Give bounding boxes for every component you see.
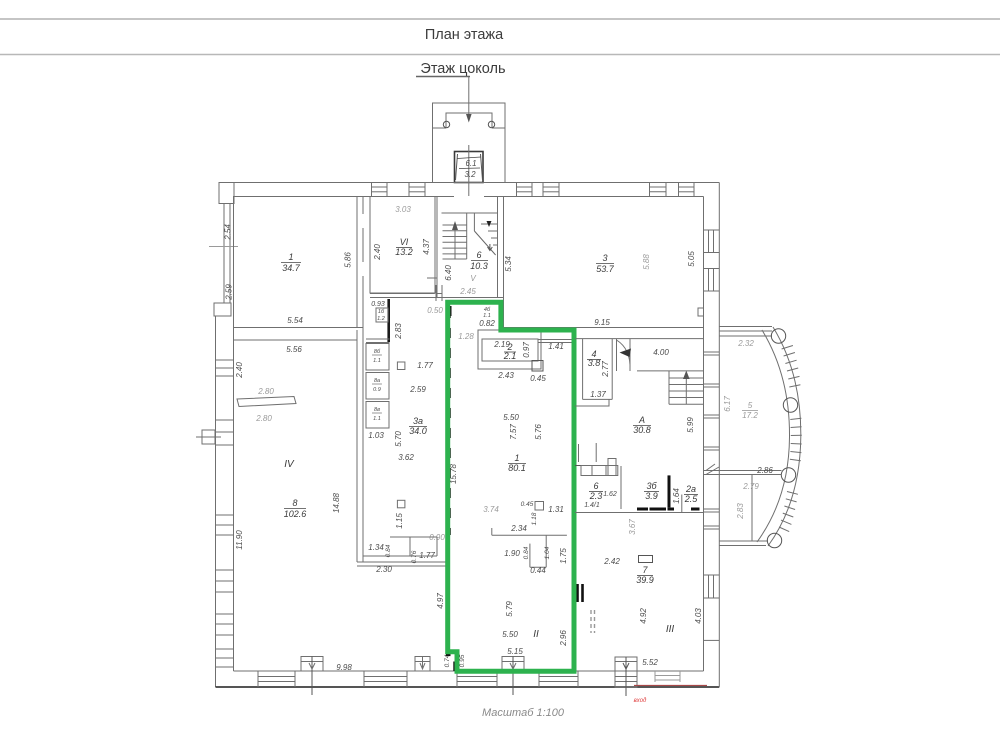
svg-text:102.6: 102.6 <box>284 509 307 519</box>
svg-text:5.88: 5.88 <box>642 254 651 270</box>
svg-text:4.00: 4.00 <box>653 348 669 357</box>
svg-text:2а: 2а <box>685 484 696 494</box>
svg-text:2.80: 2.80 <box>255 414 272 423</box>
svg-text:3.67: 3.67 <box>628 519 637 535</box>
svg-text:6: 6 <box>593 481 598 491</box>
svg-text:2.86: 2.86 <box>756 466 773 475</box>
svg-text:0.44: 0.44 <box>530 566 546 575</box>
svg-text:План этажа: План этажа <box>425 27 504 43</box>
svg-text:1.4/1: 1.4/1 <box>584 502 600 509</box>
svg-text:5.56: 5.56 <box>286 345 302 354</box>
svg-text:5.15: 5.15 <box>507 647 523 656</box>
svg-text:17.2: 17.2 <box>742 411 758 420</box>
svg-text:Этаж цоколь: Этаж цоколь <box>420 61 505 77</box>
svg-text:1.2: 1.2 <box>377 316 385 322</box>
svg-text:5.86: 5.86 <box>344 252 353 268</box>
svg-text:вход: вход <box>634 698 647 704</box>
svg-text:0.45: 0.45 <box>530 374 546 383</box>
svg-text:0.76: 0.76 <box>411 550 418 563</box>
svg-text:2.79: 2.79 <box>742 482 759 491</box>
svg-text:1.03: 1.03 <box>368 431 384 440</box>
svg-text:2.59: 2.59 <box>409 385 426 394</box>
svg-text:4.92: 4.92 <box>639 608 648 624</box>
svg-text:0.97: 0.97 <box>522 342 531 358</box>
svg-text:2.54: 2.54 <box>224 224 233 241</box>
svg-text:1.41: 1.41 <box>548 342 564 351</box>
svg-text:2.43: 2.43 <box>497 371 514 380</box>
svg-text:9.15: 9.15 <box>594 318 610 327</box>
svg-text:5.05: 5.05 <box>687 251 696 267</box>
svg-text:8в: 8в <box>374 407 380 413</box>
svg-text:2.42: 2.42 <box>603 557 620 566</box>
svg-text:1.28: 1.28 <box>458 332 474 341</box>
svg-text:39.9: 39.9 <box>636 575 654 585</box>
svg-text:4.37: 4.37 <box>422 239 431 255</box>
svg-text:II: II <box>533 629 539 640</box>
svg-text:10.3: 10.3 <box>470 261 488 271</box>
svg-text:13.2: 13.2 <box>395 247 413 257</box>
svg-text:1.37: 1.37 <box>590 390 606 399</box>
svg-text:2.30: 2.30 <box>375 565 392 574</box>
svg-text:III: III <box>666 624 675 635</box>
svg-text:3б: 3б <box>646 481 657 491</box>
svg-text:5.79: 5.79 <box>505 601 514 617</box>
svg-text:IV: IV <box>284 459 295 470</box>
svg-text:4.03: 4.03 <box>694 608 703 624</box>
svg-text:8: 8 <box>292 498 297 508</box>
svg-text:1б: 1б <box>378 309 385 315</box>
svg-text:6.17: 6.17 <box>723 396 732 412</box>
svg-text:34.0: 34.0 <box>409 426 427 436</box>
svg-text:V: V <box>470 274 476 283</box>
svg-text:3а: 3а <box>413 416 423 426</box>
svg-text:2.83: 2.83 <box>736 503 745 520</box>
svg-text:5.76: 5.76 <box>534 424 543 440</box>
svg-text:5.50: 5.50 <box>502 630 518 639</box>
svg-text:14.88: 14.88 <box>332 492 341 513</box>
svg-text:2.80: 2.80 <box>257 387 274 396</box>
svg-text:1.90: 1.90 <box>504 549 520 558</box>
svg-text:2.96: 2.96 <box>559 630 568 647</box>
svg-text:5.99: 5.99 <box>686 417 695 433</box>
svg-text:1: 1 <box>514 453 519 463</box>
svg-text:1.34: 1.34 <box>368 543 384 552</box>
svg-text:1.1: 1.1 <box>373 416 381 422</box>
svg-text:4.97: 4.97 <box>436 593 445 609</box>
svg-text:1.04: 1.04 <box>544 546 551 559</box>
svg-text:8б: 8б <box>374 349 381 355</box>
svg-text:0.95: 0.95 <box>459 654 466 667</box>
svg-text:30.8: 30.8 <box>633 425 651 435</box>
svg-text:2.45: 2.45 <box>459 287 476 296</box>
svg-text:5.70: 5.70 <box>394 431 403 447</box>
svg-text:3.74: 3.74 <box>483 505 499 514</box>
svg-text:1: 1 <box>288 252 293 262</box>
svg-text:53.7: 53.7 <box>596 264 615 274</box>
svg-text:5: 5 <box>748 401 753 410</box>
svg-text:5.50: 5.50 <box>503 413 519 422</box>
svg-text:А: А <box>638 415 645 425</box>
svg-text:2.59: 2.59 <box>225 284 234 301</box>
svg-text:2.1: 2.1 <box>503 351 517 361</box>
svg-text:5.34: 5.34 <box>504 256 513 272</box>
svg-text:0.84: 0.84 <box>385 544 392 557</box>
svg-text:8а: 8а <box>374 378 380 384</box>
svg-text:2.40: 2.40 <box>373 244 382 261</box>
svg-text:9.98: 9.98 <box>336 663 352 672</box>
svg-text:11.90: 11.90 <box>235 530 244 550</box>
svg-text:2.83: 2.83 <box>394 323 403 340</box>
svg-text:3.8: 3.8 <box>588 358 601 368</box>
svg-text:0.93: 0.93 <box>371 301 385 308</box>
svg-text:1.75: 1.75 <box>559 548 568 564</box>
svg-text:3.62: 3.62 <box>398 453 414 462</box>
svg-text:2.77: 2.77 <box>601 361 610 378</box>
svg-text:VI: VI <box>400 237 409 247</box>
svg-text:0.82: 0.82 <box>479 319 495 328</box>
svg-text:3.9: 3.9 <box>645 491 658 501</box>
svg-text:1.15: 1.15 <box>395 513 404 529</box>
svg-text:2.5: 2.5 <box>684 494 699 504</box>
svg-text:0.9: 0.9 <box>373 387 381 393</box>
svg-text:34.7: 34.7 <box>282 263 301 273</box>
svg-text:0.74: 0.74 <box>444 654 451 667</box>
svg-text:0.45: 0.45 <box>521 501 534 508</box>
svg-text:5.52: 5.52 <box>642 658 658 667</box>
svg-text:2.3: 2.3 <box>589 491 603 501</box>
svg-text:1.1: 1.1 <box>373 358 381 364</box>
svg-text:2.32: 2.32 <box>737 339 754 348</box>
svg-text:1.1: 1.1 <box>483 313 491 319</box>
svg-text:0.50: 0.50 <box>427 306 443 315</box>
svg-text:3.03: 3.03 <box>395 205 411 214</box>
svg-text:2.34: 2.34 <box>510 524 527 533</box>
svg-text:3: 3 <box>602 253 607 263</box>
svg-text:6.40: 6.40 <box>444 265 453 281</box>
svg-text:1.64: 1.64 <box>672 488 681 504</box>
svg-text:1.77: 1.77 <box>417 361 433 370</box>
svg-text:1.18: 1.18 <box>531 512 538 525</box>
svg-text:2.40: 2.40 <box>235 362 244 379</box>
svg-text:6.1: 6.1 <box>465 159 476 168</box>
svg-text:Масштаб 1:100: Масштаб 1:100 <box>482 707 565 719</box>
svg-text:1.31: 1.31 <box>548 505 564 514</box>
svg-text:6: 6 <box>476 250 481 260</box>
svg-text:80.1: 80.1 <box>508 463 526 473</box>
svg-text:1.62: 1.62 <box>603 491 617 498</box>
svg-text:7.57: 7.57 <box>509 424 518 440</box>
svg-text:0.84: 0.84 <box>523 546 530 559</box>
svg-text:7: 7 <box>642 565 648 575</box>
svg-text:5.54: 5.54 <box>287 316 303 325</box>
svg-text:3.2: 3.2 <box>464 170 476 179</box>
